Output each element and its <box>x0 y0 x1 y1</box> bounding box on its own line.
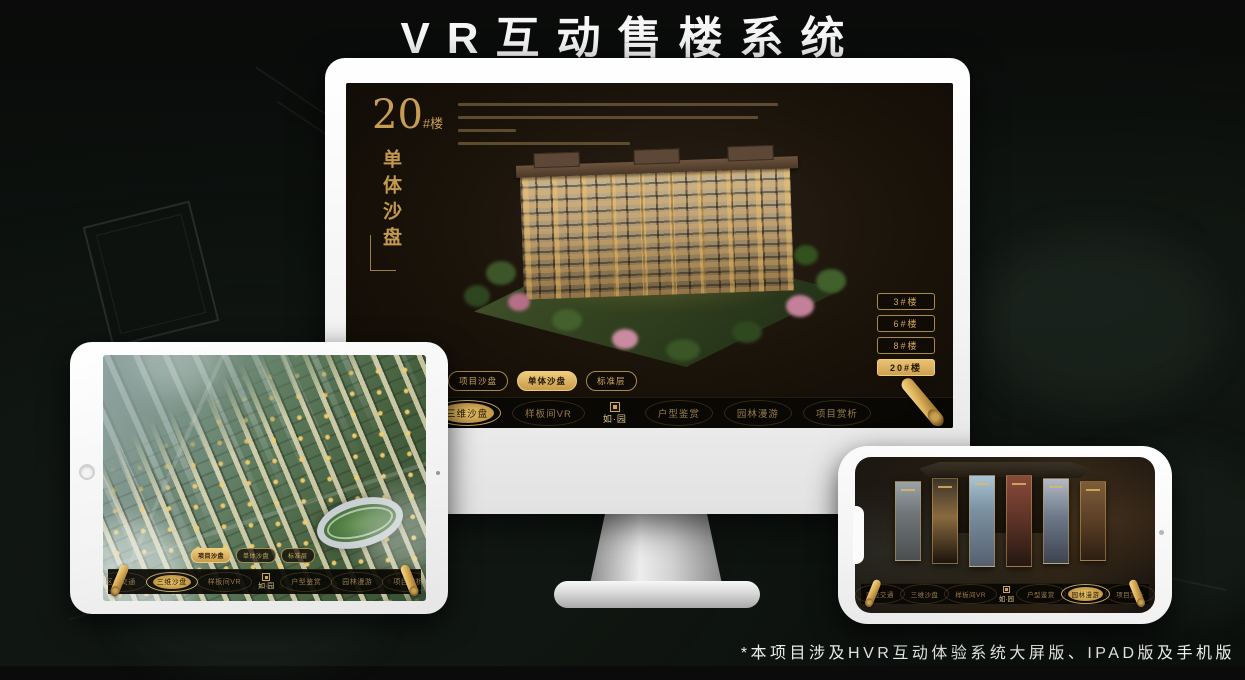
nav-showroom-vr[interactable]: 样板间VR <box>519 403 578 423</box>
project-logo: 如·园 <box>603 402 627 425</box>
gallery-panel[interactable] <box>895 481 921 561</box>
nav-3d-sandbox[interactable]: 三维沙盘 <box>440 403 494 423</box>
tree <box>552 309 582 331</box>
roof-cap <box>533 152 579 169</box>
seal-icon <box>1003 586 1010 593</box>
roof-cap <box>633 148 679 165</box>
tree <box>786 295 814 317</box>
nav-garden-roam[interactable]: 园林漫游 <box>1068 587 1104 601</box>
gallery-panel[interactable] <box>969 475 995 567</box>
gallery-panel[interactable] <box>1043 478 1069 564</box>
building-unit: #楼 <box>423 116 443 131</box>
nav-3d-sandbox[interactable]: 三维沙盘 <box>153 575 191 589</box>
nav-project-view[interactable]: 项目赏析 <box>810 403 864 423</box>
building-button-6[interactable]: 6#楼 <box>877 315 935 332</box>
home-button[interactable] <box>79 464 95 480</box>
building-title: 20#楼 <box>372 95 443 135</box>
front-camera <box>1159 530 1164 535</box>
main-nav-bar: 区位交通 三维沙盘 样板间VR 如·园 户型鉴赏 园林漫游 项目赏析 <box>108 569 421 594</box>
tree <box>612 329 638 349</box>
building-render <box>456 153 886 383</box>
tree <box>666 339 700 361</box>
project-logo: 如·园 <box>258 573 274 591</box>
nav-floorplan[interactable]: 户型鉴赏 <box>1023 587 1059 601</box>
building-button-8[interactable]: 8#楼 <box>877 337 935 354</box>
building-model <box>520 164 794 299</box>
tab-project-sandbox[interactable]: 项目沙盘 <box>191 548 231 563</box>
tree <box>486 261 516 285</box>
phone-screen: 区位交通 三维沙盘 样板间VR 如·园 户型鉴赏 园林漫游 项目赏析 <box>855 457 1155 613</box>
phone-notch <box>853 506 864 564</box>
seal-icon <box>262 573 270 581</box>
monitor-stand-base <box>554 581 760 608</box>
tab-project-sandbox[interactable]: 项目沙盘 <box>448 371 508 391</box>
nav-floorplan[interactable]: 户型鉴赏 <box>287 575 325 589</box>
building-button-20[interactable]: 20#楼 <box>877 359 935 376</box>
nav-floorplan[interactable]: 户型鉴赏 <box>652 403 706 423</box>
gallery-panel[interactable] <box>1006 475 1032 567</box>
sub-tab-bar: 项目沙盘 单体沙盘 标准层 <box>191 548 315 563</box>
seal-icon <box>610 402 620 412</box>
tab-single-sandbox[interactable]: 单体沙盘 <box>236 548 276 563</box>
sub-tab-bar: 项目沙盘 单体沙盘 标准层 <box>448 371 637 391</box>
tree <box>816 269 846 293</box>
front-camera <box>436 471 440 475</box>
tree <box>508 293 530 311</box>
phone-device: 区位交通 三维沙盘 样板间VR 如·园 户型鉴赏 园林漫游 项目赏析 <box>838 446 1172 624</box>
gallery-panel[interactable] <box>932 478 958 564</box>
tablet-device: 项目沙盘 单体沙盘 标准层 区位交通 三维沙盘 样板间VR 如·园 户型鉴赏 园… <box>70 342 448 614</box>
roof-cap <box>727 145 773 162</box>
building-number: 20 <box>372 92 423 138</box>
tree <box>464 285 490 307</box>
nav-showroom-vr[interactable]: 样板间VR <box>951 587 990 601</box>
tree <box>732 321 762 343</box>
project-logo: 如·园 <box>999 586 1014 603</box>
building-button-3[interactable]: 3#楼 <box>877 293 935 310</box>
building-button-column: 3#楼 6#楼 8#楼 20#楼 <box>877 293 935 376</box>
page-title: VR互动售楼系统 <box>0 2 1245 66</box>
main-nav-bar: 区位交通 三维沙盘 样板间VR 如·园 户型鉴赏 园林漫游 项目赏析 <box>861 583 1149 604</box>
tree <box>794 245 818 265</box>
gallery-panel-row <box>895 473 1119 569</box>
footnote: *本项目涉及HVR互动体验系统大屏版、IPAD版及手机版 <box>741 639 1235 663</box>
tab-standard-floor[interactable]: 标准层 <box>281 548 315 563</box>
gold-corner-ornament <box>370 235 396 271</box>
tab-single-sandbox[interactable]: 单体沙盘 <box>517 371 577 391</box>
nav-garden-roam[interactable]: 园林漫游 <box>731 403 785 423</box>
bg-picture-frame <box>83 201 220 348</box>
nav-showroom-vr[interactable]: 样板间VR <box>204 575 245 589</box>
nav-garden-roam[interactable]: 园林漫游 <box>338 575 376 589</box>
bg-texture <box>980 230 1220 410</box>
tab-standard-floor[interactable]: 标准层 <box>586 371 637 391</box>
gallery-panel[interactable] <box>1080 481 1106 561</box>
tablet-screen: 项目沙盘 单体沙盘 标准层 区位交通 三维沙盘 样板间VR 如·园 户型鉴赏 园… <box>103 355 426 601</box>
nav-3d-sandbox[interactable]: 三维沙盘 <box>907 587 943 601</box>
monitor-stand-neck <box>590 510 722 584</box>
